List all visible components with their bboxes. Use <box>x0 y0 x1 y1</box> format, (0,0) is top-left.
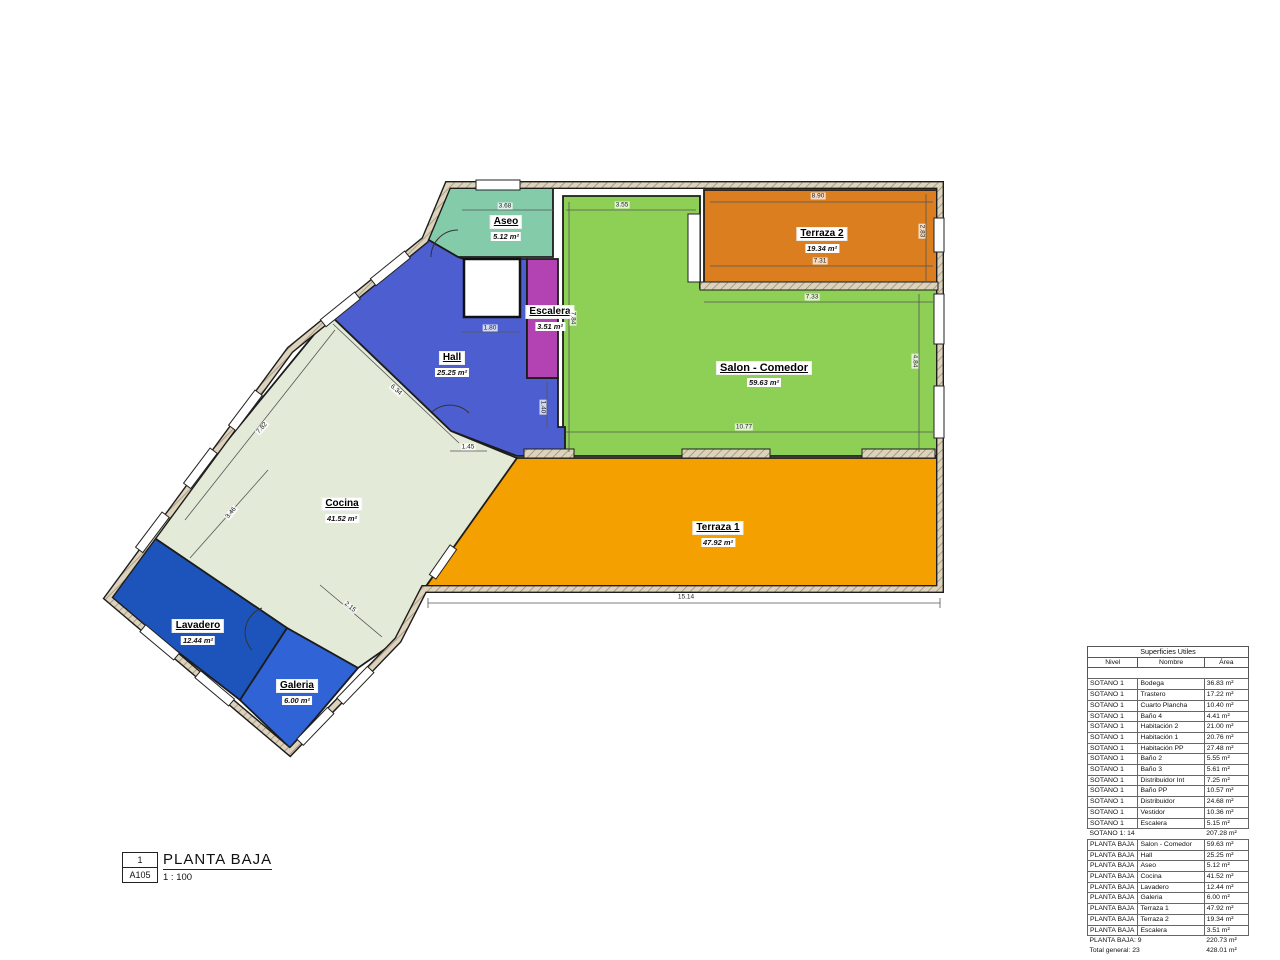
table-cell: PLANTA BAJA <box>1088 893 1138 904</box>
table-row: SOTANO 1Baño 44.41 m² <box>1088 711 1249 722</box>
table-row: PLANTA BAJATerraza 147.92 m² <box>1088 904 1249 915</box>
table-cell: Terraza 2 <box>1138 914 1204 925</box>
table-cell: SOTANO 1 <box>1088 818 1138 829</box>
table-cell: Baño 4 <box>1138 711 1204 722</box>
table-summary-row: Total general: 23428.01 m² <box>1088 946 1249 956</box>
terraza2-parapet <box>700 282 938 290</box>
dimension-text: 3.55 <box>615 202 630 209</box>
table-cell: Escalera <box>1138 818 1204 829</box>
detail-number: 1 <box>123 853 157 868</box>
table-row: SOTANO 1Trastero17.22 m² <box>1088 690 1249 701</box>
table-cell: SOTANO 1 <box>1088 711 1138 722</box>
table-cell: SOTANO 1 <box>1088 807 1138 818</box>
table-cell: Escalera <box>1138 925 1204 936</box>
table-cell: Baño 3 <box>1138 765 1204 776</box>
table-cell: 5.12 m² <box>1204 861 1248 872</box>
areas-table-body: SOTANO 1Bodega36.83 m²SOTANO 1Trastero17… <box>1088 679 1249 956</box>
table-cell: 7.25 m² <box>1204 775 1248 786</box>
table-row: SOTANO 1Escalera5.15 m² <box>1088 818 1249 829</box>
table-cell: Habitación PP <box>1138 743 1204 754</box>
table-cell: SOTANO 1 <box>1088 732 1138 743</box>
table-row: SOTANO 1Habitación 120.76 m² <box>1088 732 1249 743</box>
table-cell: SOTANO 1 <box>1088 690 1138 701</box>
table-cell: SOTANO 1 <box>1088 765 1138 776</box>
table-row: PLANTA BAJALavadero12.44 m² <box>1088 882 1249 893</box>
table-cell: SOTANO 1 <box>1088 786 1138 797</box>
terraza1-parapet <box>682 449 770 458</box>
title-block-text: PLANTA BAJA 1 : 100 <box>163 852 272 883</box>
areas-table-title: Superficies Utiles <box>1088 647 1249 658</box>
table-cell: SOTANO 1 <box>1088 754 1138 765</box>
rooms-group <box>108 187 937 748</box>
table-row: SOTANO 1Distribuidor Int7.25 m² <box>1088 775 1249 786</box>
table-row: SOTANO 1Cuarto Plancha10.40 m² <box>1088 700 1249 711</box>
table-cell: 27.48 m² <box>1204 743 1248 754</box>
dimension-text: 7.33 <box>805 294 820 301</box>
window-symbol <box>688 214 700 282</box>
table-cell: Cuarto Plancha <box>1138 700 1204 711</box>
table-cell: 5.61 m² <box>1204 765 1248 776</box>
window-symbol <box>934 294 944 344</box>
table-cell: 25.25 m² <box>1204 850 1248 861</box>
table-cell: PLANTA BAJA <box>1088 914 1138 925</box>
sheet-code: A105 <box>123 868 157 882</box>
table-row: SOTANO 1Vestidor10.36 m² <box>1088 807 1249 818</box>
table-cell: Galeria <box>1138 893 1204 904</box>
areas-table: Superficies Utiles Nivel Nombre Área SOT… <box>1087 646 1249 956</box>
table-cell: Cocina <box>1138 872 1204 883</box>
column-header-nombre: Nombre <box>1138 657 1204 668</box>
window-symbol <box>934 218 944 252</box>
table-cell: 12.44 m² <box>1204 882 1248 893</box>
table-cell: SOTANO 1 <box>1088 722 1138 733</box>
table-cell: SOTANO 1 <box>1088 797 1138 808</box>
sheet-number-box: 1 A105 <box>122 852 158 883</box>
drawing-scale: 1 : 100 <box>163 872 272 883</box>
terraza1-parapet <box>524 449 574 458</box>
table-cell: SOTANO 1 <box>1088 679 1138 690</box>
table-cell: 36.83 m² <box>1204 679 1248 690</box>
table-row: PLANTA BAJAGaleria6.00 m² <box>1088 893 1249 904</box>
table-summary-row: PLANTA BAJA: 9220.73 m² <box>1088 936 1249 946</box>
table-spacer <box>1088 668 1249 679</box>
table-cell: 10.36 m² <box>1204 807 1248 818</box>
table-cell: Lavadero <box>1138 882 1204 893</box>
table-row: SOTANO 1Baño 25.55 m² <box>1088 754 1249 765</box>
table-row: PLANTA BAJATerraza 219.34 m² <box>1088 914 1249 925</box>
table-cell: 24.68 m² <box>1204 797 1248 808</box>
table-cell: Habitación 1 <box>1138 732 1204 743</box>
table-cell: 6.00 m² <box>1204 893 1248 904</box>
table-cell: Distribuidor <box>1138 797 1204 808</box>
dimension-text: 15.14 <box>677 594 695 601</box>
table-cell: 47.92 m² <box>1204 904 1248 915</box>
table-cell: Trastero <box>1138 690 1204 701</box>
table-cell: PLANTA BAJA <box>1088 839 1138 850</box>
table-cell: 5.15 m² <box>1204 818 1248 829</box>
table-cell: Aseo <box>1138 861 1204 872</box>
table-row: SOTANO 1Habitación 221.00 m² <box>1088 722 1249 733</box>
room-terraza2-shape <box>704 190 937 285</box>
dimension-text: 7.84 <box>570 311 577 326</box>
table-cell: Distribuidor Int <box>1138 775 1204 786</box>
room-escalera-shape <box>527 259 558 378</box>
table-cell: 41.52 m² <box>1204 872 1248 883</box>
table-summary-row: SOTANO 1: 14207.28 m² <box>1088 829 1249 840</box>
table-cell: Bodega <box>1138 679 1204 690</box>
table-cell: PLANTA BAJA <box>1088 861 1138 872</box>
summary-area: 207.28 m² <box>1204 829 1248 840</box>
table-cell: PLANTA BAJA <box>1088 882 1138 893</box>
table-cell: 20.76 m² <box>1204 732 1248 743</box>
table-cell: Habitación 2 <box>1138 722 1204 733</box>
table-row: PLANTA BAJACocina41.52 m² <box>1088 872 1249 883</box>
table-row: SOTANO 1Baño 35.61 m² <box>1088 765 1249 776</box>
table-row: SOTANO 1Bodega36.83 m² <box>1088 679 1249 690</box>
dimension-text: 3.68 <box>498 203 513 210</box>
dimension-text: 8.90 <box>811 193 826 200</box>
table-cell: Baño 2 <box>1138 754 1204 765</box>
table-cell: 5.55 m² <box>1204 754 1248 765</box>
table-cell: PLANTA BAJA <box>1088 904 1138 915</box>
table-cell: PLANTA BAJA <box>1088 925 1138 936</box>
dimension-text: 2.83 <box>919 224 926 239</box>
table-row: PLANTA BAJASalon - Comedor59.63 m² <box>1088 839 1249 850</box>
dimension-text: 4.84 <box>912 354 919 369</box>
table-cell: 21.00 m² <box>1204 722 1248 733</box>
table-cell: Vestidor <box>1138 807 1204 818</box>
table-row: SOTANO 1Baño PP10.57 m² <box>1088 786 1249 797</box>
table-cell: PLANTA BAJA <box>1088 850 1138 861</box>
table-cell: 10.40 m² <box>1204 700 1248 711</box>
drawing-title: PLANTA BAJA <box>163 852 272 870</box>
shaft-void <box>464 259 520 317</box>
summary-label: SOTANO 1: 14 <box>1088 829 1205 840</box>
summary-label: PLANTA BAJA: 9 <box>1088 936 1205 946</box>
table-cell: Salon - Comedor <box>1138 839 1204 850</box>
dimension-text: 7.31 <box>813 258 828 265</box>
column-header-nivel: Nivel <box>1088 657 1138 668</box>
summary-label: Total general: 23 <box>1088 946 1205 956</box>
table-cell: SOTANO 1 <box>1088 743 1138 754</box>
drawing-sheet: Aseo 5.12 m² Escalera 3.51 m² Hall 25.25… <box>0 0 1280 960</box>
table-row: SOTANO 1Distribuidor24.68 m² <box>1088 797 1249 808</box>
title-block: 1 A105 PLANTA BAJA 1 : 100 <box>122 852 272 883</box>
table-cell: Baño PP <box>1138 786 1204 797</box>
terraza1-parapet <box>862 449 935 458</box>
column-header-area: Área <box>1204 657 1248 668</box>
dimension-text: 1.40 <box>540 400 547 415</box>
table-row: PLANTA BAJAEscalera3.51 m² <box>1088 925 1249 936</box>
table-cell: 10.57 m² <box>1204 786 1248 797</box>
dimension-text: 10.77 <box>735 424 753 431</box>
table-cell: 59.63 m² <box>1204 839 1248 850</box>
dimension-text: 1.45 <box>461 444 476 451</box>
table-cell: PLANTA BAJA <box>1088 872 1138 883</box>
summary-area: 220.73 m² <box>1204 936 1248 946</box>
window-symbol <box>934 386 944 438</box>
table-cell: Hall <box>1138 850 1204 861</box>
table-cell: SOTANO 1 <box>1088 700 1138 711</box>
table-cell: 3.51 m² <box>1204 925 1248 936</box>
table-cell: 17.22 m² <box>1204 690 1248 701</box>
table-row: SOTANO 1Habitación PP27.48 m² <box>1088 743 1249 754</box>
table-cell: Terraza 1 <box>1138 904 1204 915</box>
table-row: PLANTA BAJAAseo5.12 m² <box>1088 861 1249 872</box>
table-cell: 19.34 m² <box>1204 914 1248 925</box>
dimension-text: 1.80 <box>483 325 498 332</box>
table-row: PLANTA BAJAHall25.25 m² <box>1088 850 1249 861</box>
table-cell: SOTANO 1 <box>1088 775 1138 786</box>
table-cell: 4.41 m² <box>1204 711 1248 722</box>
window-symbol <box>476 180 520 190</box>
summary-area: 428.01 m² <box>1204 946 1248 956</box>
